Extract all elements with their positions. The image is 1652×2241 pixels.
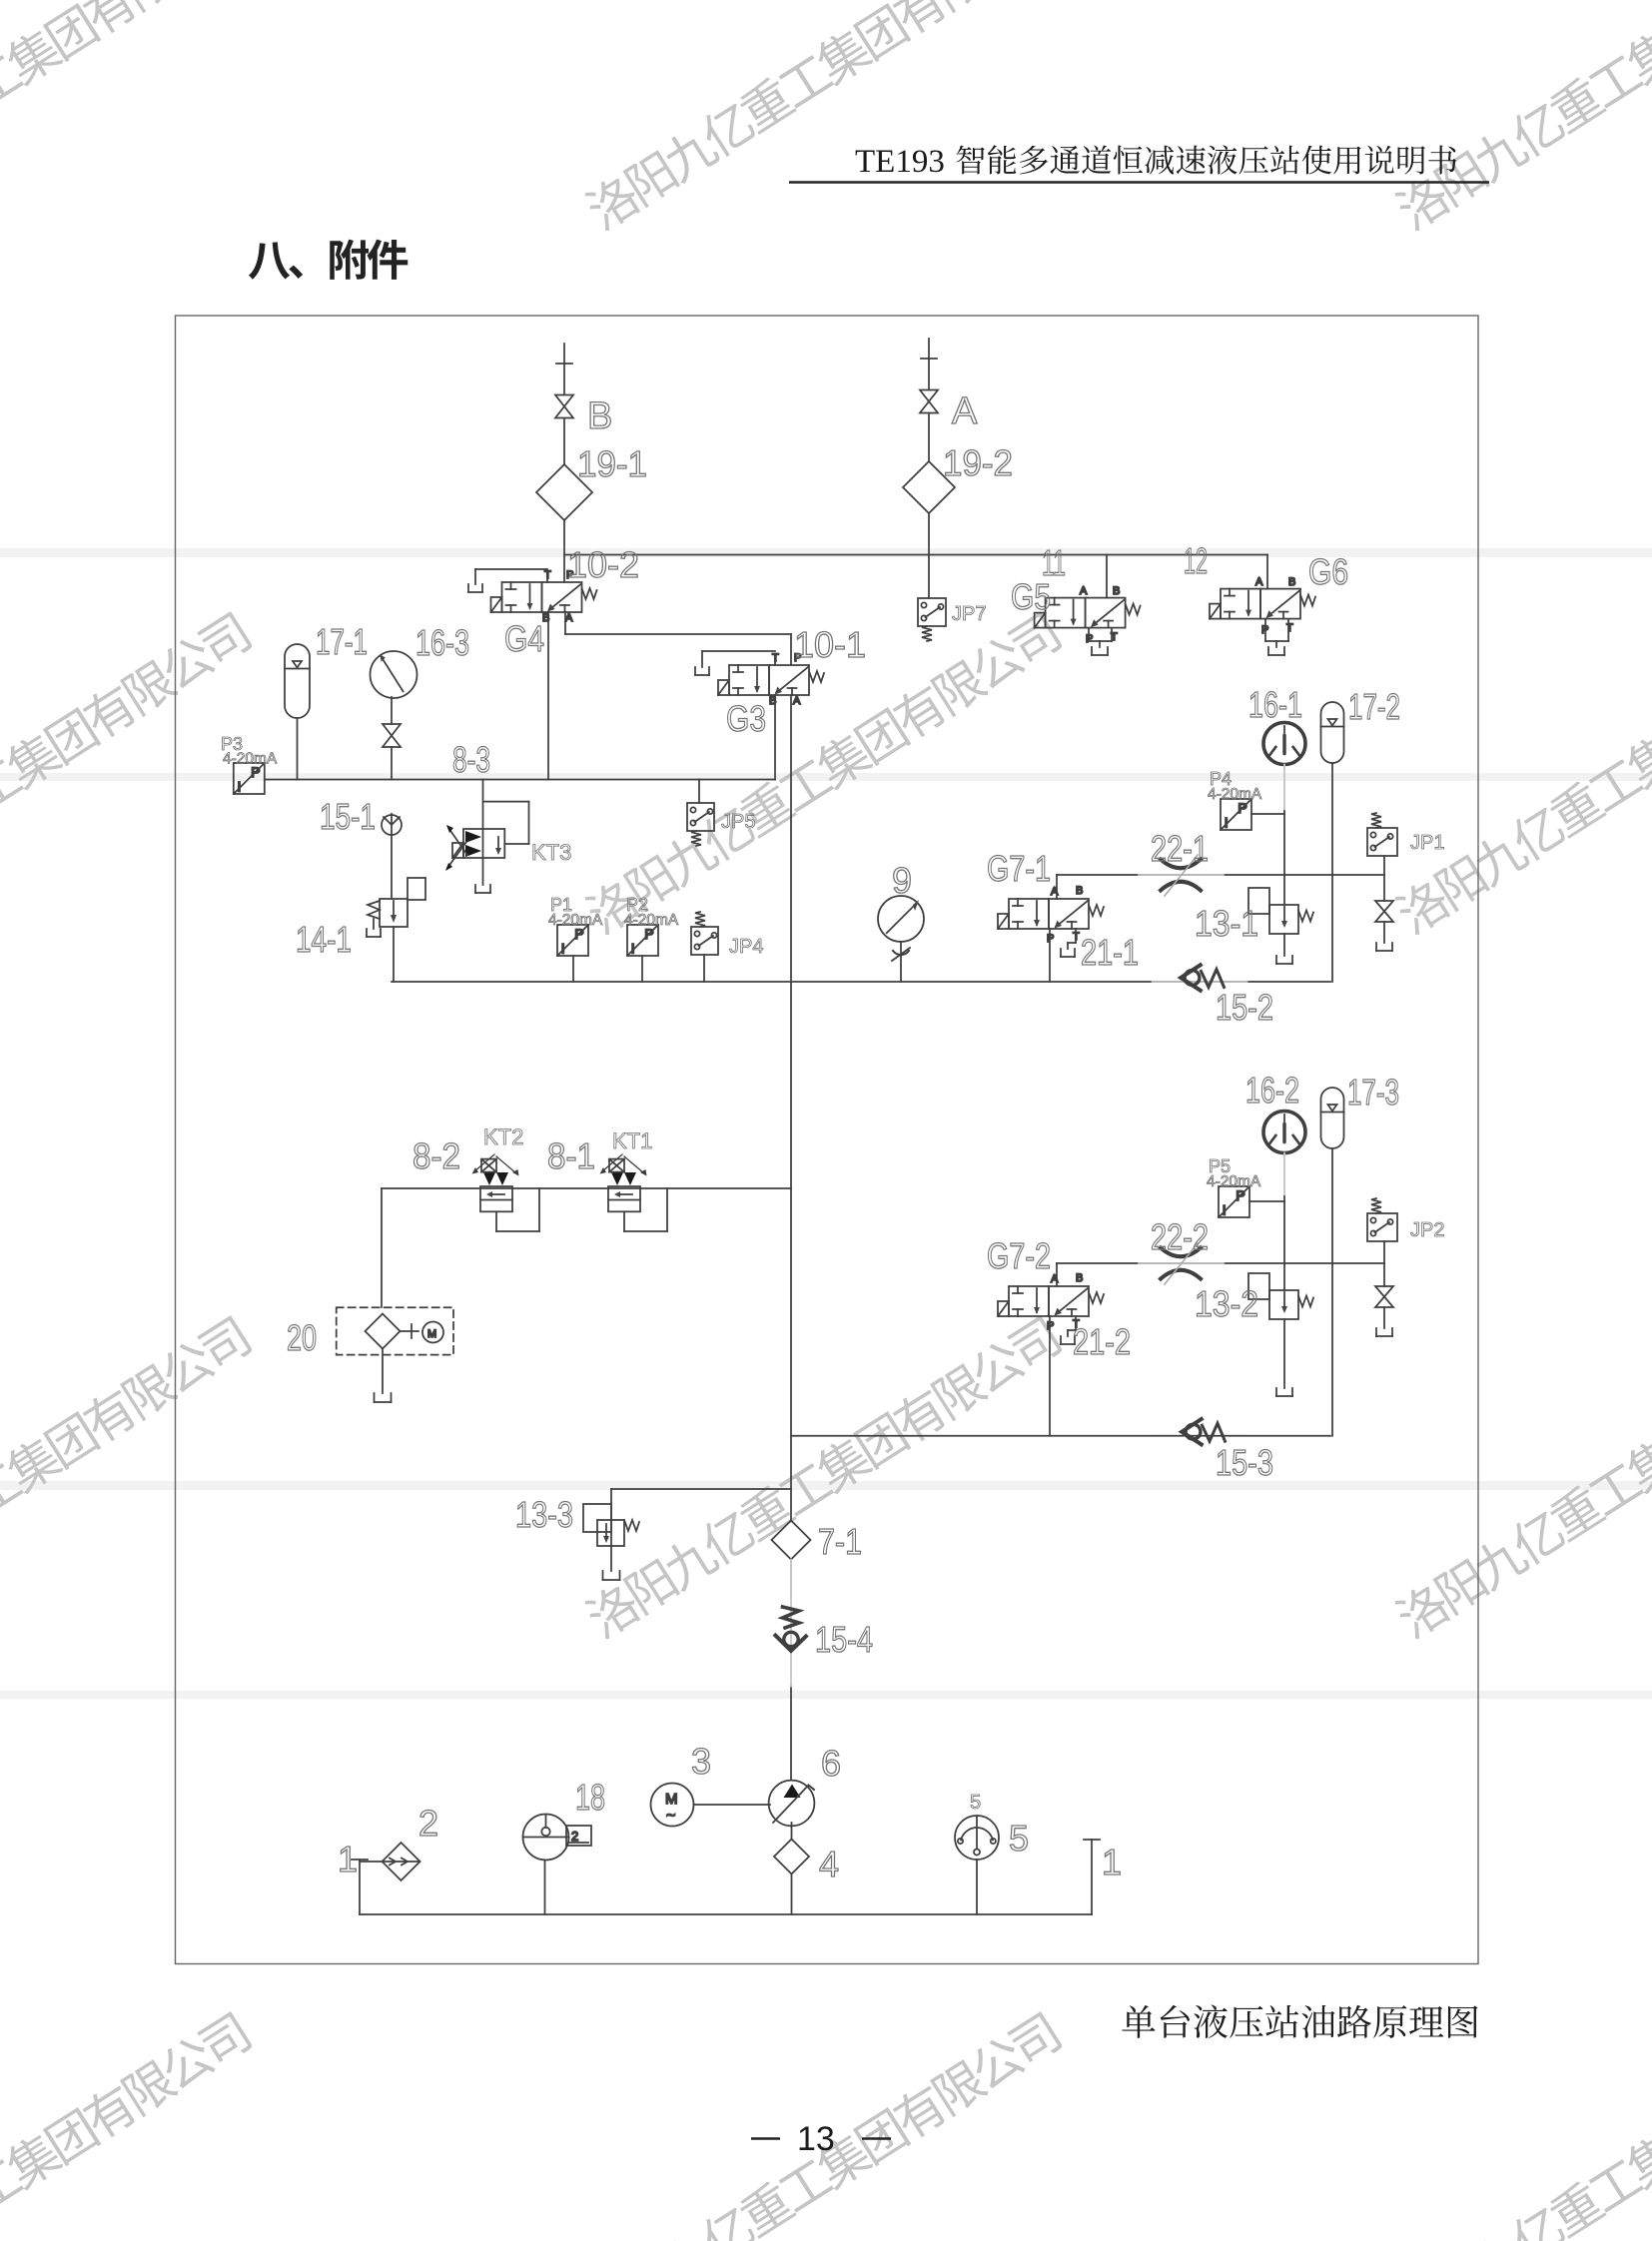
svg-text:4-20mA: 4-20mA xyxy=(1208,786,1262,803)
svg-text:B: B xyxy=(1113,585,1120,597)
svg-text:22-2: 22-2 xyxy=(1151,1216,1209,1257)
svg-text:G6: G6 xyxy=(1308,551,1348,592)
svg-text:18: 18 xyxy=(575,1777,605,1818)
svg-text:16-2: 16-2 xyxy=(1245,1070,1299,1111)
svg-text:I: I xyxy=(631,941,635,957)
svg-text:17-3: 17-3 xyxy=(1347,1072,1399,1113)
svg-text:G7-2: G7-2 xyxy=(987,1235,1051,1276)
svg-text:I: I xyxy=(238,779,242,795)
svg-text:3: 3 xyxy=(691,1741,711,1782)
svg-text:13-3: 13-3 xyxy=(515,1494,573,1535)
svg-text:15-4: 15-4 xyxy=(815,1619,873,1660)
svg-text:22-1: 22-1 xyxy=(1151,828,1209,869)
svg-text:I: I xyxy=(1223,1202,1227,1218)
svg-text:2: 2 xyxy=(571,1829,578,1844)
svg-text:KT1: KT1 xyxy=(612,1128,652,1153)
svg-text:~: ~ xyxy=(666,1808,675,1825)
svg-text:8-3: 8-3 xyxy=(452,739,490,780)
svg-text:20: 20 xyxy=(287,1317,317,1358)
svg-text:12: 12 xyxy=(1184,540,1208,581)
svg-text:B: B xyxy=(587,395,612,437)
svg-text:10-2: 10-2 xyxy=(567,544,639,585)
svg-text:A: A xyxy=(1255,576,1263,588)
svg-text:13: 13 xyxy=(797,2120,835,2158)
svg-text:G3: G3 xyxy=(726,698,766,739)
svg-text:G4: G4 xyxy=(504,618,544,659)
svg-text:M: M xyxy=(427,1328,436,1340)
svg-text:17-2: 17-2 xyxy=(1348,686,1400,727)
svg-text:2: 2 xyxy=(418,1803,438,1844)
svg-text:5: 5 xyxy=(1009,1818,1029,1859)
svg-text:4-20mA: 4-20mA xyxy=(223,751,278,768)
svg-text:JP7: JP7 xyxy=(952,603,986,625)
svg-text:A: A xyxy=(952,390,978,432)
svg-text:T: T xyxy=(1286,622,1293,634)
svg-text:I: I xyxy=(1225,815,1229,831)
svg-text:17-1: 17-1 xyxy=(316,621,368,662)
svg-text:B: B xyxy=(1076,1272,1083,1284)
svg-text:19-2: 19-2 xyxy=(943,442,1013,483)
svg-text:9: 9 xyxy=(892,860,912,901)
svg-text:6: 6 xyxy=(821,1743,841,1784)
svg-text:16-3: 16-3 xyxy=(415,622,469,663)
svg-text:13-1: 13-1 xyxy=(1195,903,1258,944)
svg-text:KT3: KT3 xyxy=(531,840,571,865)
svg-text:16-1: 16-1 xyxy=(1248,684,1302,725)
svg-text:4-20mA: 4-20mA xyxy=(1207,1173,1261,1190)
svg-text:JP5: JP5 xyxy=(721,811,755,833)
svg-text:8-2: 8-2 xyxy=(413,1135,460,1176)
svg-text:1: 1 xyxy=(338,1839,358,1879)
svg-text:B: B xyxy=(1288,576,1295,588)
svg-text:KT2: KT2 xyxy=(483,1124,523,1149)
svg-text:10-1: 10-1 xyxy=(794,624,866,665)
svg-text:JP2: JP2 xyxy=(1410,1219,1444,1241)
svg-text:JP1: JP1 xyxy=(1410,832,1444,854)
svg-text:21-1: 21-1 xyxy=(1081,932,1139,973)
svg-text:G5: G5 xyxy=(1011,576,1051,617)
svg-text:4: 4 xyxy=(819,1844,839,1884)
svg-text:I: I xyxy=(561,941,565,957)
svg-text:14-1: 14-1 xyxy=(296,919,352,960)
svg-text:A: A xyxy=(565,612,573,624)
svg-text:15-1: 15-1 xyxy=(320,796,376,837)
svg-text:19-1: 19-1 xyxy=(577,443,647,484)
svg-text:4-20mA: 4-20mA xyxy=(624,912,679,929)
svg-text:13-2: 13-2 xyxy=(1195,1283,1258,1324)
svg-text:8-1: 8-1 xyxy=(547,1135,595,1176)
svg-text:B: B xyxy=(1076,885,1083,897)
svg-text:15-3: 15-3 xyxy=(1216,1442,1273,1483)
svg-text:TE193: TE193 xyxy=(855,144,945,180)
svg-text:M: M xyxy=(665,1791,678,1808)
svg-text:A: A xyxy=(1080,585,1088,597)
svg-text:1: 1 xyxy=(1102,1842,1122,1882)
svg-text:4-20mA: 4-20mA xyxy=(548,912,603,929)
svg-text:7-1: 7-1 xyxy=(818,1521,862,1562)
svg-text:A: A xyxy=(793,695,801,707)
svg-text:G7-1: G7-1 xyxy=(987,848,1051,889)
svg-text:21-2: 21-2 xyxy=(1073,1321,1131,1362)
svg-text:5: 5 xyxy=(970,1792,981,1814)
svg-text:15-2: 15-2 xyxy=(1216,987,1273,1028)
svg-text:JP4: JP4 xyxy=(729,936,763,958)
